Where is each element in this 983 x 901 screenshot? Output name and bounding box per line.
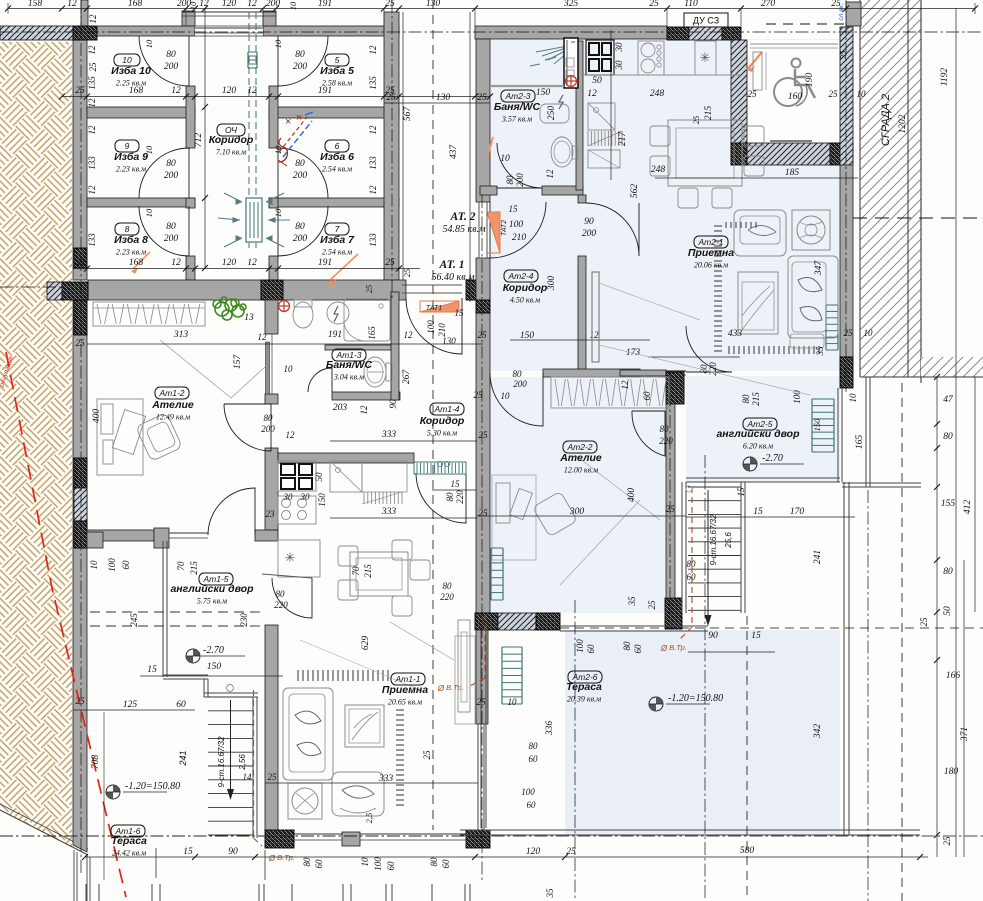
svg-text:90: 90 [388, 399, 398, 409]
svg-text:168: 168 [129, 258, 144, 268]
svg-text:100: 100 [373, 857, 383, 871]
svg-text:60: 60 [642, 391, 652, 401]
svg-text:150: 150 [812, 418, 822, 432]
svg-text:200: 200 [582, 229, 597, 239]
svg-text:9-ст.16.67/32: 9-ст.16.67/32 [709, 514, 718, 566]
svg-text:Ателие: Ателие [559, 452, 602, 464]
svg-text:10: 10 [144, 208, 154, 217]
svg-text:200: 200 [266, 0, 281, 9]
svg-text:60: 60 [633, 644, 643, 654]
svg-text:200: 200 [515, 173, 525, 187]
svg-text:25: 25 [748, 89, 758, 99]
svg-text:✳: ✳ [700, 50, 711, 65]
svg-text:15: 15 [753, 507, 763, 517]
svg-text:25: 25 [76, 257, 86, 267]
svg-text:Ат1-2: Ат1-2 [158, 388, 184, 398]
svg-text:133: 133 [87, 233, 97, 247]
svg-text:15: 15 [183, 847, 193, 857]
svg-text:100: 100 [575, 639, 585, 653]
svg-text:Ø: Ø [660, 644, 668, 653]
svg-text:120: 120 [526, 847, 541, 857]
svg-text:25: 25 [829, 89, 839, 99]
svg-text:70: 70 [176, 561, 186, 571]
svg-text:130: 130 [442, 336, 456, 346]
svg-text:215: 215 [751, 392, 761, 406]
svg-text:80: 80 [295, 50, 305, 60]
svg-text:90: 90 [584, 217, 594, 227]
svg-text:В.Тр.: В.Тр. [669, 643, 687, 652]
svg-text:Приемна: Приемна [382, 684, 428, 696]
svg-text:6.20 кв.м: 6.20 кв.м [743, 442, 773, 451]
svg-text:200: 200 [164, 171, 179, 181]
svg-text:712: 712 [194, 133, 204, 148]
svg-text:12: 12 [87, 125, 97, 135]
svg-text:130: 130 [436, 93, 451, 103]
svg-text:2.54 кв.м: 2.54 кв.м [322, 165, 352, 174]
svg-text:120: 120 [222, 0, 237, 9]
svg-text:Ат2-1: Ат2-1 [697, 237, 723, 247]
svg-text:20.39 кв.м: 20.39 кв.м [567, 695, 601, 704]
svg-text:25: 25 [666, 504, 676, 514]
svg-text:215: 215 [189, 561, 199, 575]
svg-text:80: 80 [529, 741, 539, 751]
svg-text:35: 35 [815, 346, 825, 357]
svg-text:15: 15 [751, 631, 761, 641]
svg-text:10: 10 [144, 39, 154, 48]
svg-text:248: 248 [651, 165, 666, 175]
svg-text:215: 215 [363, 564, 373, 578]
svg-text:200: 200 [261, 424, 275, 434]
svg-text:Ат1-4: Ат1-4 [433, 404, 459, 414]
svg-text:×: × [285, 116, 291, 128]
svg-text:80: 80 [943, 567, 953, 577]
svg-text:10: 10 [864, 328, 874, 338]
svg-text:Изба 7: Изба 7 [320, 234, 355, 246]
svg-text:9-ст.16.67/32: 9-ст.16.67/32 [217, 736, 226, 788]
svg-text:3.57 кв.м: 3.57 кв.м [501, 115, 532, 124]
svg-text:371: 371 [960, 727, 970, 742]
svg-text:12: 12 [359, 405, 369, 415]
svg-text:12: 12 [247, 86, 257, 96]
svg-text:267: 267 [402, 369, 412, 385]
svg-text:4.50 кв.м: 4.50 кв.м [510, 296, 540, 305]
svg-text:25: 25 [76, 338, 86, 348]
svg-text:50: 50 [314, 472, 324, 482]
svg-text:155: 155 [941, 499, 956, 509]
svg-text:100: 100 [107, 558, 117, 572]
svg-text:12: 12 [545, 169, 555, 179]
svg-text:60: 60 [687, 572, 697, 582]
svg-text:-2.70: -2.70 [203, 645, 224, 656]
svg-text:12: 12 [247, 0, 257, 9]
svg-text:133: 133 [87, 156, 97, 170]
svg-text:Коридор: Коридор [209, 134, 254, 146]
svg-text:333: 333 [381, 430, 397, 440]
svg-text:АТ. 1: АТ. 1 [438, 259, 464, 271]
svg-text:333: 333 [378, 774, 394, 784]
svg-text:157: 157 [233, 354, 243, 370]
svg-text:412: 412 [963, 500, 973, 515]
svg-text:12: 12 [88, 14, 98, 24]
svg-text:150: 150 [317, 493, 327, 507]
svg-text:25: 25 [649, 0, 659, 9]
svg-text:10: 10 [360, 857, 370, 867]
svg-text:90: 90 [708, 631, 718, 641]
svg-text:12: 12 [199, 0, 209, 9]
svg-text:580: 580 [740, 846, 755, 856]
svg-text:158: 158 [28, 0, 43, 9]
svg-text:437: 437 [449, 144, 459, 160]
svg-text:СГРАДА 2: СГРАДА 2 [880, 94, 892, 146]
svg-text:24.42 кв.м: 24.42 кв.м [112, 849, 146, 858]
svg-text:200: 200 [293, 171, 308, 181]
svg-text:12: 12 [587, 89, 597, 99]
svg-text:241: 241 [178, 750, 188, 766]
svg-text:10: 10 [501, 391, 511, 401]
svg-text:30: 30 [614, 60, 624, 71]
svg-text:54.85 кв.м: 54.85 кв.м [443, 224, 487, 235]
svg-text:30: 30 [614, 42, 624, 53]
svg-text:25: 25 [402, 269, 412, 278]
svg-text:130: 130 [426, 0, 441, 9]
svg-text:25: 25 [479, 430, 489, 440]
svg-text:10: 10 [188, 1, 198, 10]
svg-text:135: 135 [87, 76, 97, 90]
svg-text:Ø: Ø [268, 854, 276, 863]
svg-text:ТАТ2: ТАТ2 [501, 220, 508, 236]
svg-text:6: 6 [335, 141, 340, 151]
svg-text:313: 313 [173, 330, 189, 340]
svg-text:10: 10 [122, 55, 132, 65]
svg-text:10: 10 [857, 89, 867, 99]
svg-text:230: 230 [239, 613, 249, 627]
svg-text:-1.20=150.80: -1.20=150.80 [668, 693, 723, 704]
svg-text:10: 10 [89, 560, 99, 570]
svg-text:12: 12 [368, 185, 378, 195]
svg-text:25: 25 [919, 617, 929, 627]
svg-text:250: 250 [547, 106, 557, 121]
svg-text:80: 80 [264, 413, 274, 423]
svg-text:-1.20=150.80: -1.20=150.80 [125, 781, 180, 792]
svg-text:В.Тр.: В.Тр. [277, 853, 295, 862]
svg-text:80: 80 [687, 559, 697, 569]
svg-text:347: 347 [814, 260, 824, 277]
svg-text:Ателие: Ателие [151, 399, 194, 411]
svg-text:12: 12 [404, 330, 414, 340]
svg-text:60: 60 [121, 560, 131, 570]
svg-text:400: 400 [627, 488, 637, 503]
svg-text:Изба 9: Изба 9 [114, 151, 148, 163]
svg-text:13: 13 [244, 313, 254, 323]
svg-text:200: 200 [293, 234, 308, 244]
svg-text:60: 60 [586, 644, 596, 654]
svg-text:английски двор: английски двор [716, 428, 800, 440]
svg-text:80: 80 [429, 857, 439, 867]
svg-text:80: 80 [295, 222, 305, 232]
svg-text:60: 60 [386, 861, 396, 871]
svg-text:25: 25 [268, 772, 278, 782]
svg-text:25: 25 [88, 62, 98, 72]
svg-text:125: 125 [123, 700, 138, 710]
svg-text:168: 168 [128, 0, 143, 9]
svg-text:12: 12 [171, 258, 181, 268]
svg-text:Изба 10: Изба 10 [111, 65, 151, 77]
svg-text:708: 708 [91, 755, 101, 770]
svg-text:Изба 6: Изба 6 [320, 151, 354, 163]
svg-text:150: 150 [207, 662, 222, 672]
svg-text:191: 191 [318, 0, 332, 9]
svg-text:25: 25 [478, 330, 488, 340]
svg-text:220: 220 [659, 436, 673, 446]
svg-text:80: 80 [302, 857, 312, 867]
svg-text:20.06 кв.м: 20.06 кв.м [694, 261, 728, 270]
svg-text:12: 12 [67, 0, 77, 9]
svg-text:14: 14 [243, 772, 253, 782]
svg-text:20.65 кв.м: 20.65 кв.м [388, 698, 422, 707]
svg-text:80: 80 [505, 175, 515, 185]
svg-text:300: 300 [569, 507, 585, 517]
svg-text:7: 7 [335, 224, 340, 234]
svg-text:166: 166 [946, 671, 961, 681]
svg-text:50: 50 [943, 606, 953, 616]
svg-text:10: 10 [508, 697, 518, 707]
svg-text:Баня/WC: Баня/WC [494, 101, 541, 113]
svg-text:Тераса: Тераса [111, 835, 147, 847]
svg-text:210: 210 [437, 323, 447, 337]
svg-text:2.54 кв.м: 2.54 кв.м [322, 248, 352, 257]
svg-text:185: 185 [785, 168, 800, 178]
svg-text:70: 70 [351, 566, 361, 576]
svg-text:12: 12 [620, 380, 630, 390]
svg-text:56.40 кв.м: 56.40 кв.м [432, 272, 476, 283]
svg-text:60: 60 [314, 859, 324, 869]
svg-text:25: 25 [75, 86, 85, 96]
svg-text:АТ. 2: АТ. 2 [449, 211, 475, 223]
svg-text:191: 191 [318, 258, 332, 268]
svg-text:Ат2-4: Ат2-4 [507, 271, 533, 281]
svg-text:9: 9 [125, 141, 130, 151]
svg-text:10: 10 [273, 145, 283, 154]
svg-text:60: 60 [176, 700, 186, 710]
svg-text:80: 80 [443, 581, 453, 591]
svg-text:25: 25 [385, 258, 395, 268]
svg-text:270: 270 [761, 0, 776, 9]
svg-text:ДУ СЗ: ДУ СЗ [693, 16, 719, 26]
svg-text:15: 15 [455, 308, 465, 318]
svg-text:английски двор: английски двор [170, 583, 254, 595]
svg-text:215: 215 [704, 106, 714, 121]
svg-text:1192: 1192 [940, 68, 950, 87]
svg-text:135: 135 [368, 76, 378, 90]
svg-text:80: 80 [622, 641, 632, 651]
svg-text:12: 12 [286, 430, 296, 440]
svg-text:220: 220 [455, 490, 465, 504]
svg-text:Тераса: Тераса [566, 681, 602, 693]
svg-text:12: 12 [87, 185, 97, 195]
svg-text:217: 217 [618, 131, 628, 147]
svg-text:2.23 кв.м: 2.23 кв.м [116, 248, 146, 257]
svg-text:562: 562 [630, 184, 640, 199]
svg-text:110: 110 [684, 0, 698, 9]
svg-text:200: 200 [164, 62, 179, 72]
svg-text:25: 25 [76, 696, 86, 706]
svg-text:10: 10 [848, 393, 858, 403]
svg-text:25: 25 [844, 328, 854, 338]
svg-text:7.10 кв.м: 7.10 кв.м [216, 148, 246, 157]
svg-text:60: 60 [529, 754, 539, 764]
svg-text:15: 15 [736, 487, 746, 497]
svg-text:60: 60 [527, 800, 537, 810]
svg-text:Изба 8: Изба 8 [114, 234, 148, 246]
svg-text:333: 333 [381, 507, 397, 517]
svg-text:10: 10 [500, 154, 510, 164]
svg-text:325: 325 [563, 0, 579, 9]
svg-text:80: 80 [276, 589, 286, 599]
svg-text:200: 200 [513, 379, 527, 389]
svg-text:47: 47 [943, 395, 954, 405]
svg-text:-2.70: -2.70 [762, 453, 783, 464]
svg-text:25: 25 [838, 51, 848, 60]
svg-text:Коридор: Коридор [420, 415, 465, 427]
svg-text:35: 35 [627, 596, 637, 607]
svg-text:25: 25 [477, 697, 487, 707]
svg-text:5.30 кв.м: 5.30 кв.м [427, 429, 457, 438]
svg-text:10: 10 [273, 39, 283, 48]
svg-text:Ат2-3: Ат2-3 [504, 91, 530, 101]
svg-text:220: 220 [274, 600, 288, 610]
svg-text:10: 10 [284, 364, 294, 374]
svg-text:25: 25 [831, 0, 841, 9]
svg-text:190: 190 [805, 73, 815, 88]
svg-text:80: 80 [295, 159, 305, 169]
svg-text:23: 23 [266, 509, 276, 519]
svg-text:168: 168 [129, 86, 144, 96]
svg-text:12.00 кв.м: 12.00 кв.м [564, 466, 598, 475]
svg-text:2.23 кв.м: 2.23 кв.м [116, 165, 146, 174]
svg-text:12: 12 [368, 45, 378, 55]
svg-text:170: 170 [790, 507, 805, 517]
svg-text:200: 200 [164, 234, 179, 244]
svg-text:25: 25 [385, 0, 395, 9]
svg-text:30: 30 [283, 492, 294, 502]
svg-text:25,6: 25,6 [724, 532, 733, 549]
svg-text:133: 133 [368, 156, 378, 170]
svg-text:ТАТ1: ТАТ1 [426, 305, 442, 312]
svg-text:Ат1-1: Ат1-1 [394, 674, 420, 684]
svg-text:30: 30 [300, 492, 311, 502]
svg-text:10: 10 [288, 1, 298, 10]
svg-text:80: 80 [166, 50, 176, 60]
svg-text:25: 25 [479, 508, 489, 518]
svg-text:100: 100 [426, 320, 436, 334]
svg-text:80: 80 [741, 394, 751, 404]
svg-text:150: 150 [520, 331, 535, 341]
svg-text:160: 160 [788, 92, 803, 102]
svg-text:12: 12 [368, 125, 378, 135]
svg-text:203: 203 [333, 403, 348, 413]
svg-text:80: 80 [513, 369, 523, 379]
svg-text:248: 248 [650, 89, 665, 99]
svg-text:220: 220 [440, 592, 454, 602]
svg-text:165: 165 [855, 435, 865, 450]
svg-text:80: 80 [943, 432, 953, 442]
svg-text:2,56: 2,56 [238, 754, 247, 771]
svg-text:3.04 кв.м: 3.04 кв.м [333, 373, 364, 382]
svg-text:15: 15 [509, 204, 519, 214]
svg-text:5.75 кв.м: 5.75 кв.м [197, 597, 227, 606]
svg-text:133: 133 [368, 233, 378, 247]
svg-text:Ø: Ø [437, 684, 445, 693]
svg-text:80: 80 [166, 159, 176, 169]
svg-text:×: × [296, 112, 302, 124]
svg-text:12: 12 [258, 332, 268, 342]
svg-text:12.49 кв.м: 12.49 кв.м [156, 413, 190, 422]
svg-text:60: 60 [441, 859, 451, 869]
svg-text:25: 25 [691, 116, 701, 125]
svg-text:100: 100 [509, 220, 524, 230]
svg-text:210: 210 [512, 233, 527, 243]
svg-text:433: 433 [728, 329, 743, 339]
svg-text:1202: 1202 [898, 114, 908, 133]
svg-text:25: 25 [566, 847, 576, 857]
svg-text:25: 25 [942, 836, 952, 846]
svg-text:Изба 5: Изба 5 [320, 65, 354, 77]
svg-text:80: 80 [445, 492, 455, 502]
svg-text:12: 12 [87, 45, 97, 55]
svg-text:400: 400 [92, 409, 102, 424]
svg-text:120: 120 [222, 86, 237, 96]
svg-text:25: 25 [364, 285, 374, 294]
svg-text:12: 12 [87, 98, 97, 108]
svg-text:165: 165 [367, 326, 377, 340]
svg-text:245: 245 [129, 613, 139, 627]
svg-text:Ат2-2: Ат2-2 [566, 442, 592, 452]
svg-text:25: 25 [474, 390, 484, 400]
svg-text:5: 5 [335, 55, 340, 65]
svg-text:629: 629 [361, 636, 371, 651]
svg-text:342: 342 [813, 724, 823, 740]
svg-text:12: 12 [171, 86, 181, 96]
svg-text:25: 25 [422, 750, 432, 760]
svg-text:12: 12 [247, 258, 257, 268]
svg-text:Коридор: Коридор [503, 282, 548, 294]
svg-text:241: 241 [813, 550, 823, 564]
svg-text:567: 567 [403, 106, 413, 122]
svg-text:8: 8 [125, 224, 130, 234]
svg-text:100: 100 [521, 787, 535, 797]
svg-text:25: 25 [386, 93, 396, 103]
svg-text:220: 220 [708, 362, 718, 376]
svg-text:191: 191 [318, 86, 332, 96]
svg-text:200: 200 [293, 62, 308, 72]
svg-text:12: 12 [590, 330, 600, 340]
svg-text:Приемна: Приемна [688, 247, 734, 259]
svg-text:80: 80 [166, 222, 176, 232]
svg-text:15: 15 [147, 665, 157, 675]
svg-text:✳: ✳ [285, 550, 296, 565]
svg-text:336: 336 [545, 721, 555, 737]
svg-text:180: 180 [944, 767, 959, 777]
svg-text:50: 50 [592, 76, 602, 86]
svg-text:191: 191 [328, 330, 342, 340]
svg-text:10: 10 [144, 145, 154, 154]
svg-text:25: 25 [477, 93, 487, 103]
svg-text:25: 25 [647, 600, 657, 610]
svg-text:80: 80 [660, 424, 670, 434]
svg-text:2,5: 2,5 [364, 813, 374, 824]
svg-text:15: 15 [451, 479, 461, 489]
svg-text:150: 150 [536, 88, 551, 98]
